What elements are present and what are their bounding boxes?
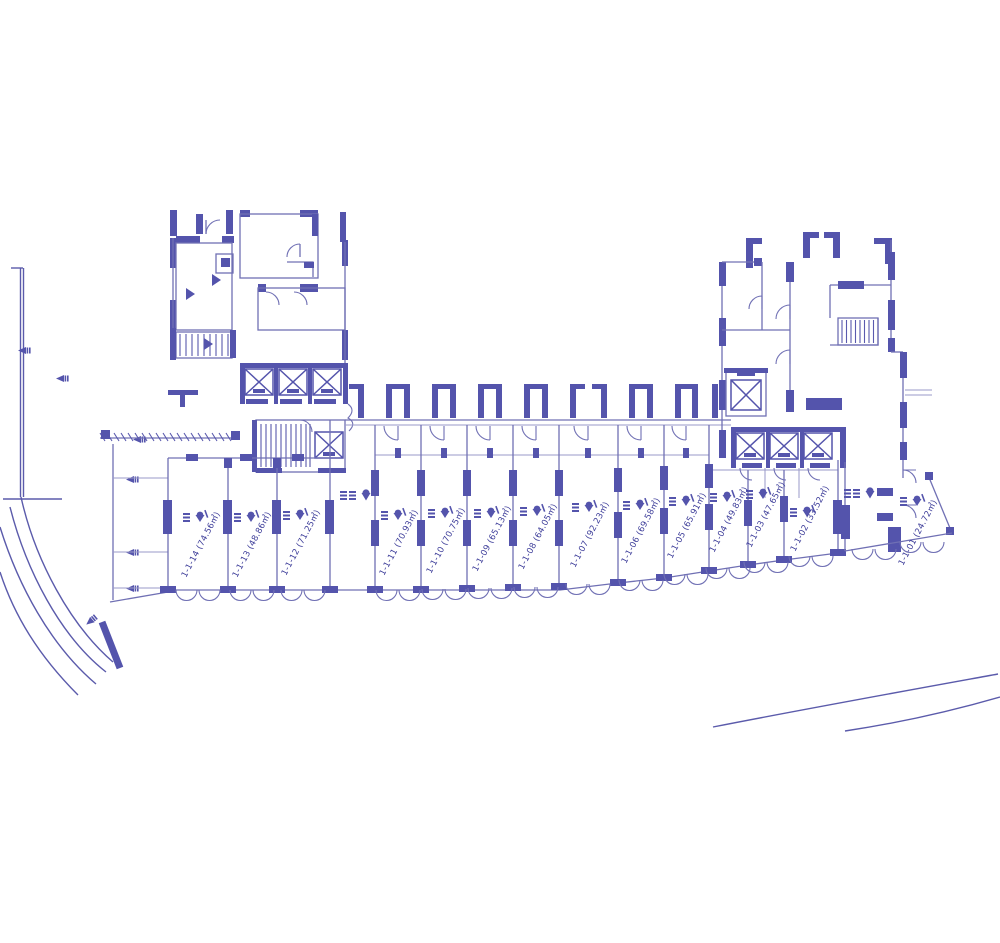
- elevator-shaft-icon: [245, 369, 273, 395]
- elevation-marker-icon: [283, 508, 308, 520]
- elevation-marker-icon: [428, 506, 453, 518]
- tower-core-top-left: [170, 210, 348, 364]
- elevation-marker-icon: [844, 487, 875, 498]
- floor-plan-svg: 1-1-14 (74.56㎡) 1-1-13 (48.86㎡) 1-1-12 (…: [0, 0, 1000, 943]
- elevation-marker-icon: [474, 506, 499, 518]
- shopfront-wall: [160, 549, 846, 593]
- elevator-shaft-icon: [315, 432, 343, 458]
- elevator-shaft-icon: [279, 369, 307, 395]
- door-swing-arc-icon: [776, 305, 790, 319]
- elevator-shaft-icon: [770, 433, 798, 459]
- pilaster-brackets: [349, 384, 718, 418]
- unit-01-walls: [841, 390, 954, 560]
- elevator-bank-right: [731, 427, 846, 468]
- left-outdoor-terrace: [110, 444, 168, 602]
- elevation-marker-icon: [84, 614, 98, 627]
- elevator-shaft-icon: [313, 369, 341, 395]
- curved-road-bottom-left: [0, 497, 113, 695]
- elevation-marker-icon: [746, 487, 771, 499]
- unit-label-1-1-01: 1-1-01 (24.72㎡): [897, 498, 940, 567]
- site-boundary-left: [3, 268, 62, 499]
- elevation-marker-icon: [126, 476, 139, 483]
- staircase-hatch-icon: [842, 320, 874, 343]
- road-edges-bottom-right: [713, 674, 1000, 731]
- elevation-marker-icon: [381, 508, 406, 520]
- elevator-shaft-icon: [736, 433, 764, 459]
- interior-door-arcs: [384, 426, 689, 458]
- unit-label-1-1-02: 1-1-02 (33.52㎡): [789, 484, 832, 553]
- fence-hatched-line: [100, 430, 240, 441]
- elevation-marker-icon: [572, 500, 597, 512]
- elevation-marker-icon: [340, 489, 371, 500]
- t-wall-mark: [168, 390, 198, 407]
- shopfront-door-arcs: [176, 556, 833, 601]
- door-swing-arc-icon: [348, 404, 353, 431]
- elevation-marker-icon: [56, 375, 69, 382]
- elevation-marker-icon: [669, 494, 694, 506]
- elevation-marker-icon: [183, 510, 208, 522]
- elevation-marker-icon: [234, 510, 259, 522]
- elevator-shaft-icon: [804, 433, 832, 459]
- elevation-marker-icon: [710, 490, 735, 502]
- door-swing-arc-icon: [776, 350, 790, 364]
- elevation-marker-icon: [900, 494, 925, 506]
- site-elevation-markers: [18, 347, 146, 627]
- elevation-marker-icon: [623, 498, 648, 510]
- stair-elevator-block-left: [252, 420, 346, 473]
- floor-plan-canvas: 1-1-14 (74.56㎡) 1-1-13 (48.86㎡) 1-1-12 (…: [0, 0, 1000, 943]
- elevation-marker-icon: [520, 504, 545, 516]
- single-elevator: [724, 368, 768, 416]
